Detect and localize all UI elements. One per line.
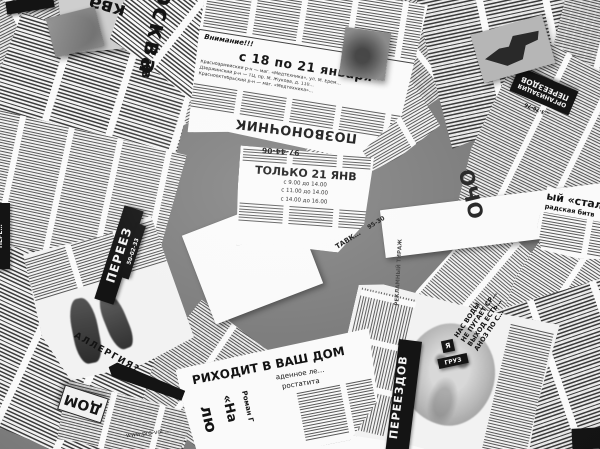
newsprint-texture: [538, 212, 600, 258]
vertical-headline-na: «На: [219, 393, 240, 424]
stavki-text: ТАВК…: [334, 229, 362, 251]
left-edge-banner: ПЕРЕ…: [0, 203, 10, 269]
figure-photo: [66, 296, 104, 366]
ya-text: Я: [445, 342, 452, 351]
left-edge-banner-text: ПЕРЕ…: [0, 203, 10, 269]
vertical-byline-roman: Роман Г: [240, 390, 255, 423]
newspaper-collage-photo: Внимание!!! с 18 по 21 января Красноарме…: [0, 0, 600, 449]
ya-label: Я: [441, 339, 455, 353]
vertical-headline-lyu: лю: [197, 404, 222, 435]
photo-fragment: [339, 27, 391, 81]
small-black-label: [571, 427, 600, 449]
kv-text: кв: [138, 59, 156, 79]
gruz-text: ГРУЗ: [444, 356, 462, 366]
